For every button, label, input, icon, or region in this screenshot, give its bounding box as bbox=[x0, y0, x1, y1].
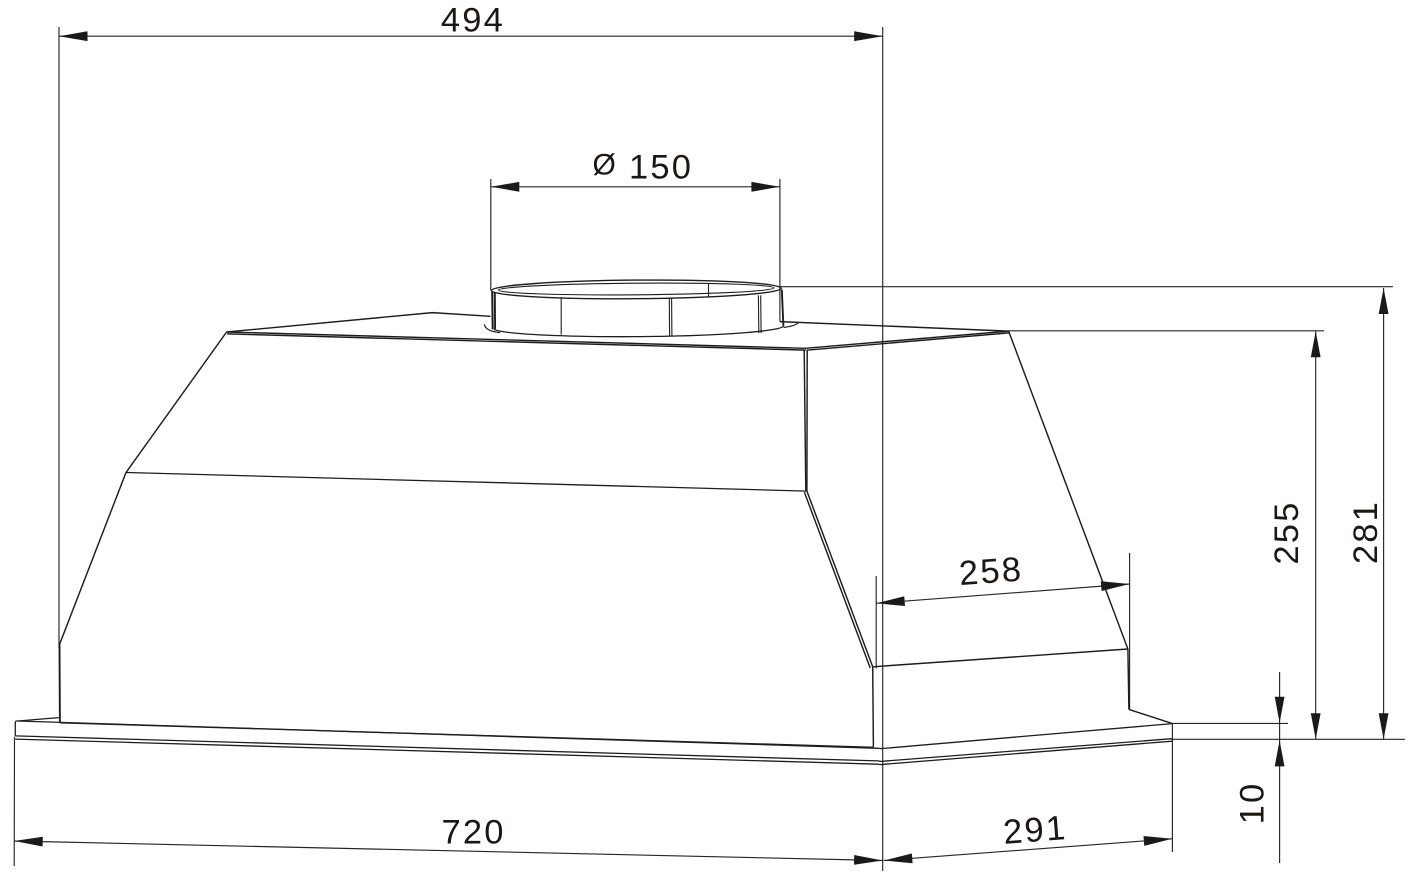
svg-text:494: 494 bbox=[441, 2, 505, 40]
svg-text:291: 291 bbox=[1002, 809, 1069, 852]
svg-text:255: 255 bbox=[1268, 500, 1306, 564]
svg-text:10: 10 bbox=[1234, 782, 1272, 825]
svg-text:720: 720 bbox=[442, 814, 506, 852]
svg-text:281: 281 bbox=[1347, 500, 1385, 564]
svg-text:Ø: Ø bbox=[593, 149, 619, 182]
svg-text:150: 150 bbox=[629, 149, 693, 187]
svg-text:258: 258 bbox=[958, 550, 1025, 593]
